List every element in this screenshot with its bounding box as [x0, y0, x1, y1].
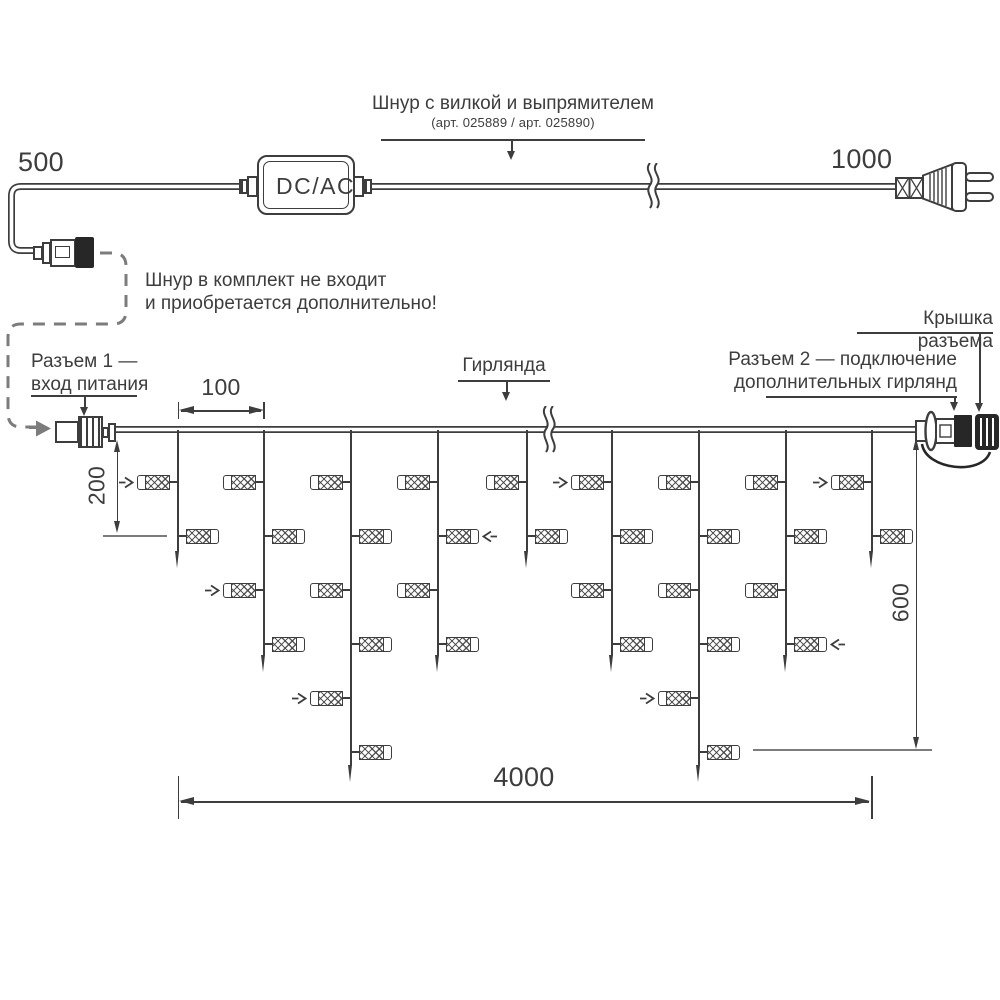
drop-wire [177, 430, 179, 551]
connector2-black-body [954, 415, 972, 447]
drop-wire [437, 430, 439, 655]
dim-4000-tick-right [871, 776, 873, 819]
drop-wire-tip [435, 655, 439, 672]
blink-bulb-arrow-icon [292, 692, 307, 705]
led-bulb-body [405, 475, 430, 490]
led-bulb-tip [397, 475, 406, 490]
power-cord-callout-line [381, 139, 645, 141]
bulb-lead-wire [169, 481, 178, 483]
bulb-lead-wire [342, 697, 351, 699]
power-cord-articles: (арт. 025889 / арт. 025890) [340, 115, 686, 130]
bulb-lead-wire [777, 589, 786, 591]
led-bulb-tip [731, 637, 740, 652]
dim-200-label: 200 [84, 446, 111, 526]
led-bulb-tip [383, 529, 392, 544]
connector2-arrow-head [950, 402, 958, 411]
bulb-lead-wire [342, 589, 351, 591]
garland-callout-line [458, 380, 550, 382]
connector1-body [55, 421, 79, 443]
led-bulb-tip [658, 691, 667, 706]
dim-4000-line [181, 801, 869, 803]
led-bulb-body [707, 637, 732, 652]
led-bulb-tip [210, 529, 219, 544]
led-bulb-tip [571, 583, 580, 598]
led-bulb-tip [486, 475, 495, 490]
dim-600-arrow-down [913, 737, 919, 749]
connector1-knurl [78, 416, 103, 448]
led-bulb-tip [731, 745, 740, 760]
drop-wire [526, 430, 528, 551]
blink-bulb-arrow-icon [553, 476, 568, 489]
drop-wire [263, 430, 265, 655]
power-cord-title: Шнур с вилкой и выпрямителем [340, 92, 686, 115]
led-bulb-body [494, 475, 519, 490]
led-bulb-tip [310, 583, 319, 598]
led-bulb-tip [397, 583, 406, 598]
led-bulb-tip [223, 583, 232, 598]
connector2-callout-line [766, 396, 957, 398]
led-bulb-body [535, 529, 560, 544]
diagram-page: DC/AC [0, 0, 1000, 1000]
dim-600-line [916, 448, 918, 740]
dashed-connection-path [8, 253, 126, 427]
power-cord-arrow-head [507, 151, 515, 160]
cord-connector-inner [55, 246, 70, 258]
led-bulb-tip [223, 475, 232, 490]
connector2-assembly [910, 406, 1000, 462]
drop-wire-tip [348, 765, 352, 782]
led-bulb-body [405, 583, 430, 598]
led-bulb-tip [745, 475, 754, 490]
drop-wire [611, 430, 613, 655]
led-bulb-body [359, 637, 384, 652]
power-cord-callout: Шнур с вилкой и выпрямителем (арт. 02588… [340, 92, 686, 130]
led-bulb-tip [818, 529, 827, 544]
led-bulb-body [579, 475, 604, 490]
bulb-lead-wire [690, 589, 699, 591]
dim-200-arrow-up [114, 440, 120, 452]
dim-100-arrow-left [179, 406, 194, 414]
dim-100-label: 100 [191, 374, 251, 401]
dim-4000-label: 4000 [464, 762, 584, 793]
bulb-lead-wire [863, 481, 872, 483]
cap-callout: Крышка разъема [843, 307, 993, 353]
led-bulb-body [666, 691, 691, 706]
adapter-right-nub [363, 179, 372, 194]
bulb-lead-wire [342, 481, 351, 483]
bulb-lead-wire [777, 481, 786, 483]
led-bulb-body [446, 529, 471, 544]
led-bulb-tip [644, 637, 653, 652]
blink-bulb-arrow-icon [640, 692, 655, 705]
led-bulb-body [359, 529, 384, 544]
bulb-lead-wire [255, 481, 264, 483]
bulb-lead-wire [429, 481, 438, 483]
led-bulb-body [839, 475, 864, 490]
dim-200-ref-line [103, 535, 167, 537]
cap-callout-line [857, 332, 993, 334]
dc-ac-label: DC/AC [276, 173, 355, 200]
dashed-path-arrow-icon [29, 421, 51, 437]
led-bulb-tip [296, 529, 305, 544]
dim-200-line [117, 447, 119, 527]
led-bulb-tip [831, 475, 840, 490]
connector2-callout: Разъем 2 — подключение дополнительных ги… [707, 348, 957, 394]
led-bulb-tip [383, 637, 392, 652]
led-bulb-body [145, 475, 170, 490]
led-bulb-tip [818, 637, 827, 652]
blink-bulb-arrow-icon [205, 584, 220, 597]
drop-wire-tip [869, 551, 873, 568]
connector1-callout: Разъем 1 — вход питания [31, 350, 148, 396]
led-bulb-body [231, 583, 256, 598]
connector1-arrow-line [84, 396, 86, 407]
led-bulb-body [794, 529, 819, 544]
blink-bulb-arrow-icon [813, 476, 828, 489]
led-bulb-body [272, 529, 297, 544]
led-bulb-tip [571, 475, 580, 490]
drop-wire-tip [609, 655, 613, 672]
led-bulb-tip [658, 583, 667, 598]
garland-arrow-head [502, 392, 510, 401]
garland-arrow-line [506, 381, 508, 392]
led-bulb-body [620, 529, 645, 544]
dim-500-label: 500 [18, 147, 64, 178]
dim-200-arrow-down [114, 521, 120, 533]
led-bulb-body [753, 475, 778, 490]
led-bulb-tip [383, 745, 392, 760]
led-bulb-body [186, 529, 211, 544]
note-not-included: Шнур в комплект не входит и приобретаетс… [145, 269, 437, 315]
led-bulb-tip [470, 529, 479, 544]
bulb-lead-wire [690, 697, 699, 699]
led-bulb-body [707, 529, 732, 544]
led-bulb-tip [559, 529, 568, 544]
led-bulb-body [231, 475, 256, 490]
adapter-left-socket [247, 176, 258, 197]
led-bulb-tip [137, 475, 146, 490]
cord-break-icon [640, 163, 666, 209]
cord-connector-cap [75, 237, 94, 268]
led-bulb-tip [658, 475, 667, 490]
bulb-lead-wire [603, 481, 612, 483]
led-bulb-body [318, 691, 343, 706]
drop-wire-tip [783, 655, 787, 672]
power-plug-icon [893, 158, 999, 216]
dim-1000-label: 1000 [831, 144, 892, 175]
drop-wire-tip [696, 765, 700, 782]
led-bulb-body [880, 529, 905, 544]
blink-bulb-arrow-icon [830, 638, 845, 651]
power-cord-arrow-line [511, 140, 513, 151]
led-bulb-body [446, 637, 471, 652]
dim-100-arrow-right [249, 406, 264, 414]
connector1-arrow-head [80, 407, 88, 416]
led-bulb-tip [745, 583, 754, 598]
bulb-lead-wire [429, 589, 438, 591]
led-bulb-body [707, 745, 732, 760]
drop-wire-tip [261, 655, 265, 672]
drop-wire-tip [524, 551, 528, 568]
blink-bulb-arrow-icon [482, 530, 497, 543]
bulb-lead-wire [690, 481, 699, 483]
led-bulb-body [318, 475, 343, 490]
led-bulb-body [620, 637, 645, 652]
bulb-lead-wire [518, 481, 527, 483]
led-bulb-tip [310, 475, 319, 490]
cap-arrow-line [979, 333, 981, 403]
led-bulb-tip [904, 529, 913, 544]
drop-wire-tip [175, 551, 179, 568]
dim-600-arrow-up [913, 438, 919, 450]
drop-wire [785, 430, 787, 655]
led-bulb-tip [731, 529, 740, 544]
led-bulb-tip [310, 691, 319, 706]
drop-wire [871, 430, 873, 551]
dim-4000-arrow-left [179, 797, 194, 805]
dim-600-label: 600 [888, 563, 915, 643]
led-bulb-body [666, 583, 691, 598]
led-bulb-tip [470, 637, 479, 652]
led-bulb-tip [644, 529, 653, 544]
dim-4000-arrow-right [855, 797, 870, 805]
led-bulb-tip [296, 637, 305, 652]
led-bulb-body [359, 745, 384, 760]
led-bulb-body [794, 637, 819, 652]
led-bulb-body [318, 583, 343, 598]
led-bulb-body [753, 583, 778, 598]
cap-arrow-head [975, 403, 983, 412]
dim-600-ref-line [753, 749, 932, 751]
garland-callout: Гирлянда [444, 354, 564, 377]
bulb-lead-wire [603, 589, 612, 591]
led-bulb-body [272, 637, 297, 652]
led-bulb-body [579, 583, 604, 598]
bulb-lead-wire [255, 589, 264, 591]
garland-break-icon [536, 406, 562, 453]
blink-bulb-arrow-icon [119, 476, 134, 489]
led-bulb-body [666, 475, 691, 490]
